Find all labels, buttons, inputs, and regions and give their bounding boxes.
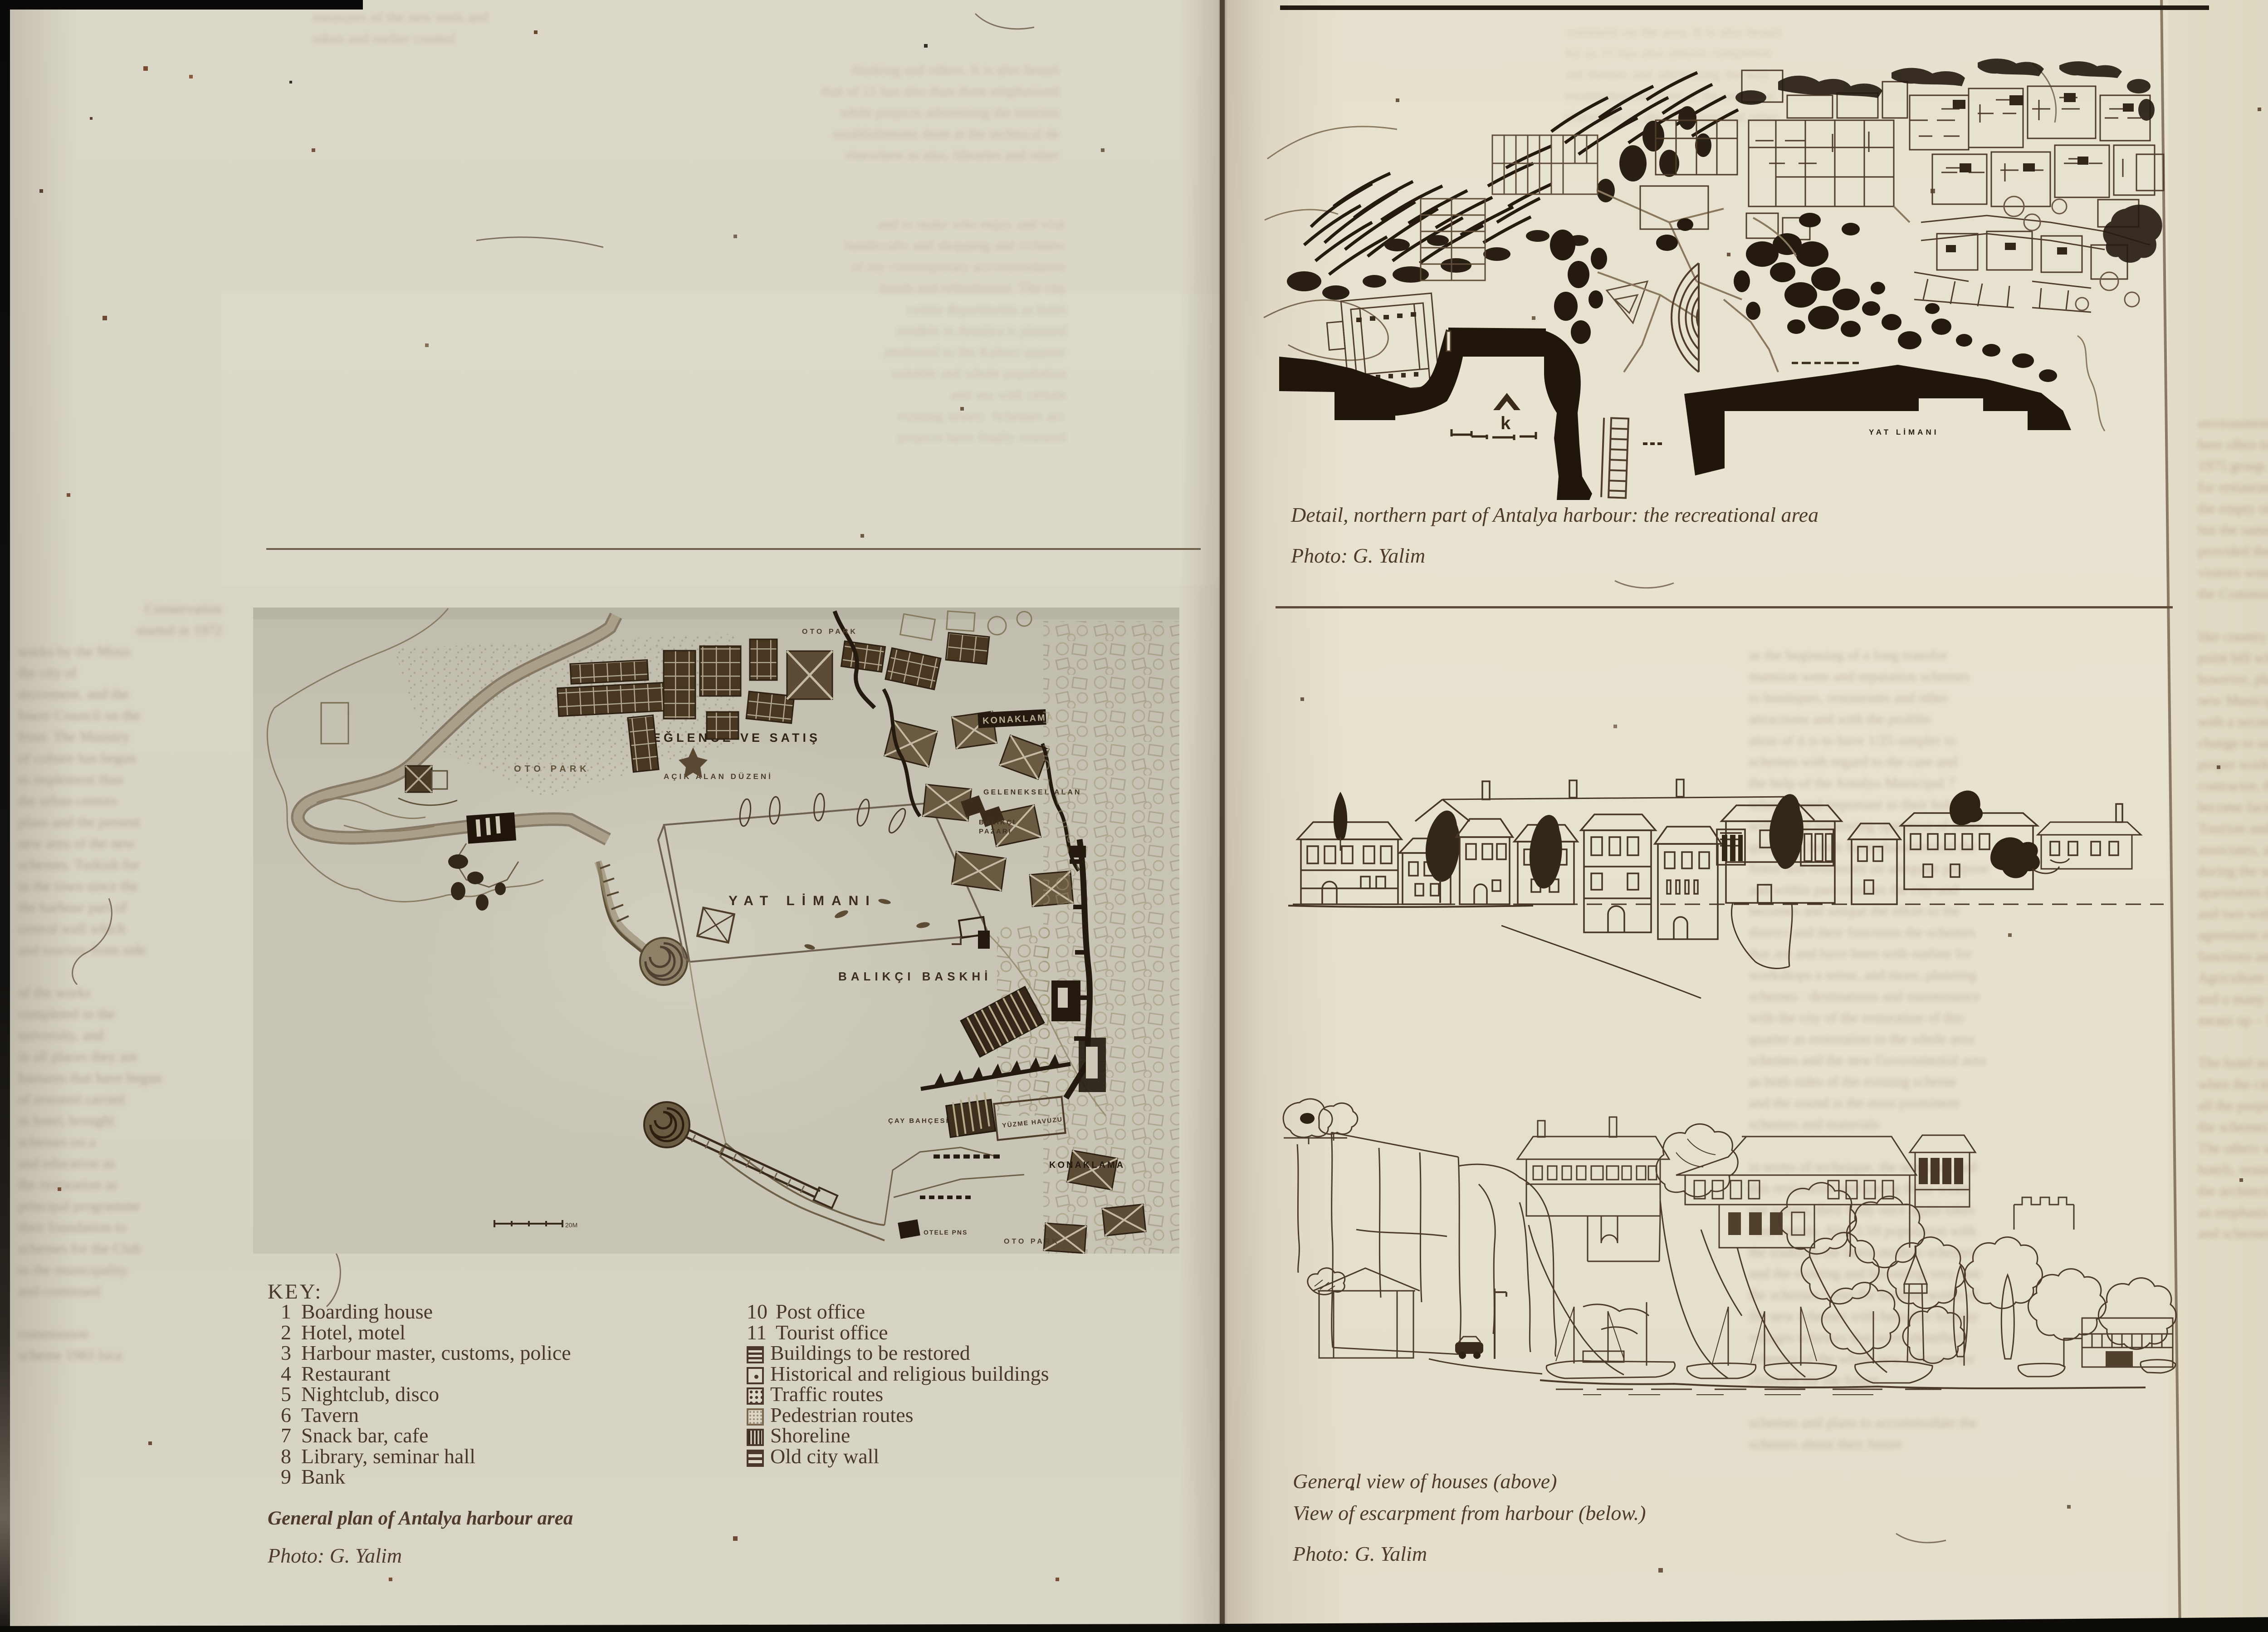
svg-text:BALIKÇI BASKHİ: BALIKÇI BASKHİ: [838, 970, 992, 983]
svg-text:OTO PARK: OTO PARK: [514, 764, 590, 774]
svg-text:YAT LİMANI: YAT LİMANI: [728, 893, 877, 908]
svg-text:PAZARI: PAZARI: [979, 828, 1012, 835]
svg-text:ÇAY BAHÇESİ: ÇAY BAHÇESİ: [888, 1117, 949, 1125]
svg-text:KONAKLAMA: KONAKLAMA: [1049, 1160, 1125, 1170]
svg-text:AÇIK ALAN DÜZENİ: AÇIK ALAN DÜZENİ: [664, 772, 773, 781]
svg-text:YAT LİMANI: YAT LİMANI: [1869, 428, 1939, 436]
svg-text:OTELE PNS: OTELE PNS: [924, 1229, 968, 1236]
svg-text:20M: 20M: [565, 1221, 577, 1229]
svg-text:OTO PARK: OTO PARK: [802, 628, 858, 636]
svg-text:OTO PARK: OTO PARK: [1004, 1238, 1060, 1245]
svg-text:BALIKÇI: BALIKÇI: [979, 818, 1016, 826]
svg-text:k: k: [1501, 413, 1511, 433]
